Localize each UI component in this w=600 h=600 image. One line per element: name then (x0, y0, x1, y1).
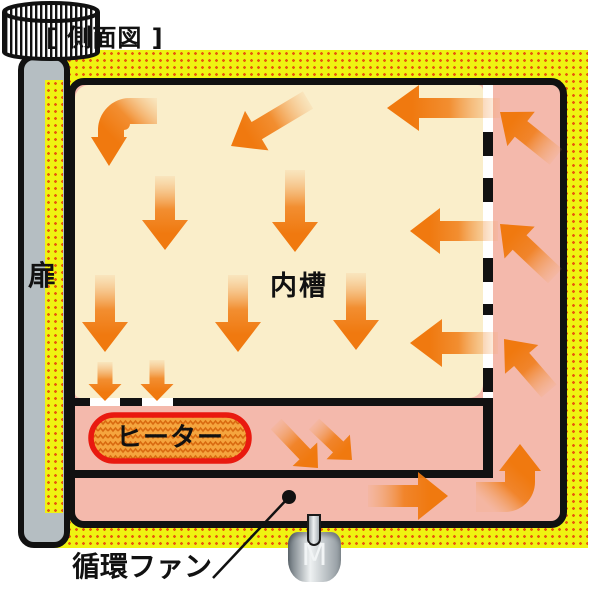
inner-chamber (75, 85, 483, 398)
motor-label: M (288, 538, 341, 573)
side-view-diagram: ヒーター M [ 側面図 ] 扉 内槽 循環ファン (0, 0, 600, 600)
dashed-wall-segment (483, 258, 493, 315)
heater-compartment-bottom-wall (75, 470, 483, 478)
heater-label: ヒーター (88, 412, 252, 464)
door-insulation-strip (45, 80, 63, 513)
door-label: 扉 (28, 254, 56, 294)
heater-compartment-right-wall (483, 398, 493, 478)
wall-segment (75, 398, 90, 406)
inner-chamber-label: 内槽 (270, 264, 328, 303)
diagram-title: [ 側面図 ] (46, 18, 164, 53)
wall-segment (120, 398, 142, 406)
dashed-wall-segment (483, 368, 493, 398)
circulation-fan-label: 循環ファン (72, 545, 212, 585)
dashed-wall-segment (483, 132, 493, 205)
heater: ヒーター (88, 412, 252, 464)
wall-segment (173, 398, 483, 406)
